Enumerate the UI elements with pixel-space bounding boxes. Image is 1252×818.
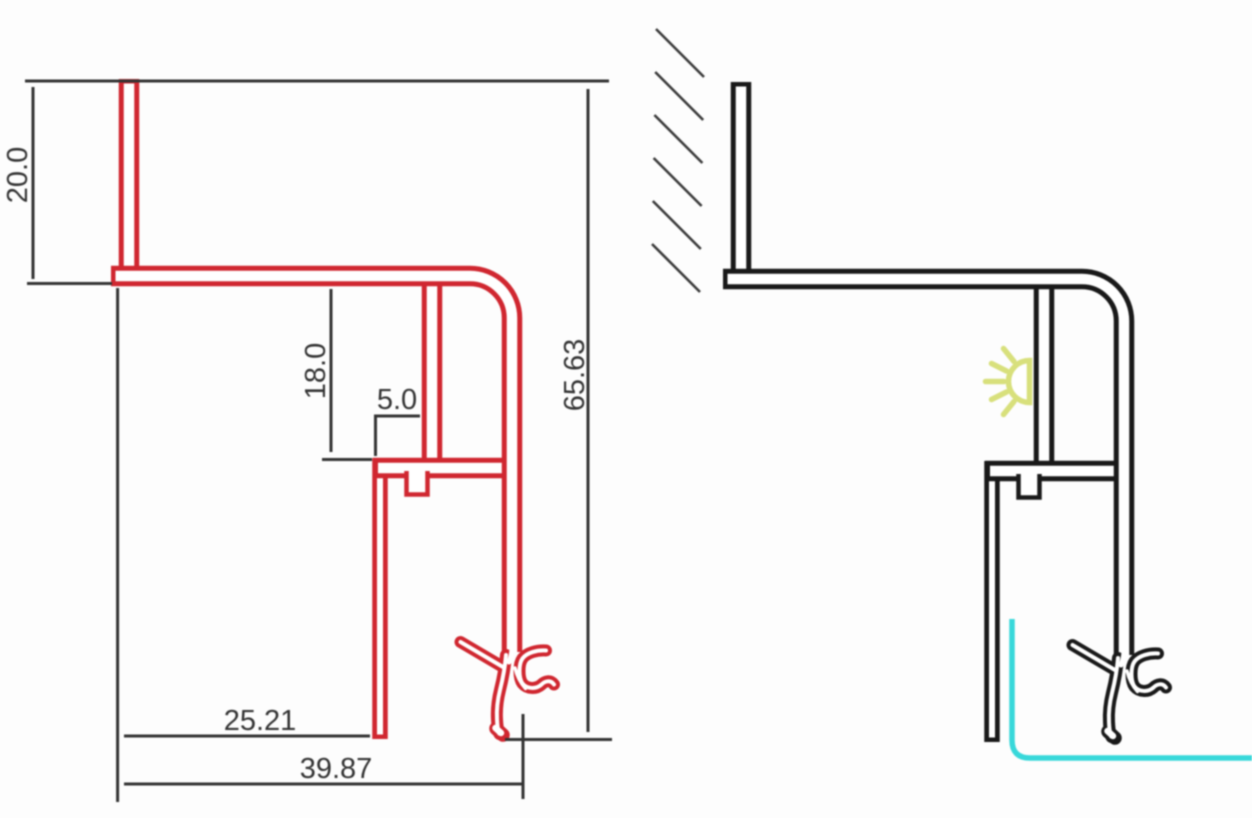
svg-text:39.87: 39.87 — [300, 753, 373, 785]
svg-text:20.0: 20.0 — [2, 147, 34, 203]
svg-text:65.63: 65.63 — [559, 339, 591, 412]
svg-text:5.0: 5.0 — [377, 384, 417, 416]
svg-text:18.0: 18.0 — [300, 343, 332, 399]
svg-text:25.21: 25.21 — [224, 705, 297, 737]
